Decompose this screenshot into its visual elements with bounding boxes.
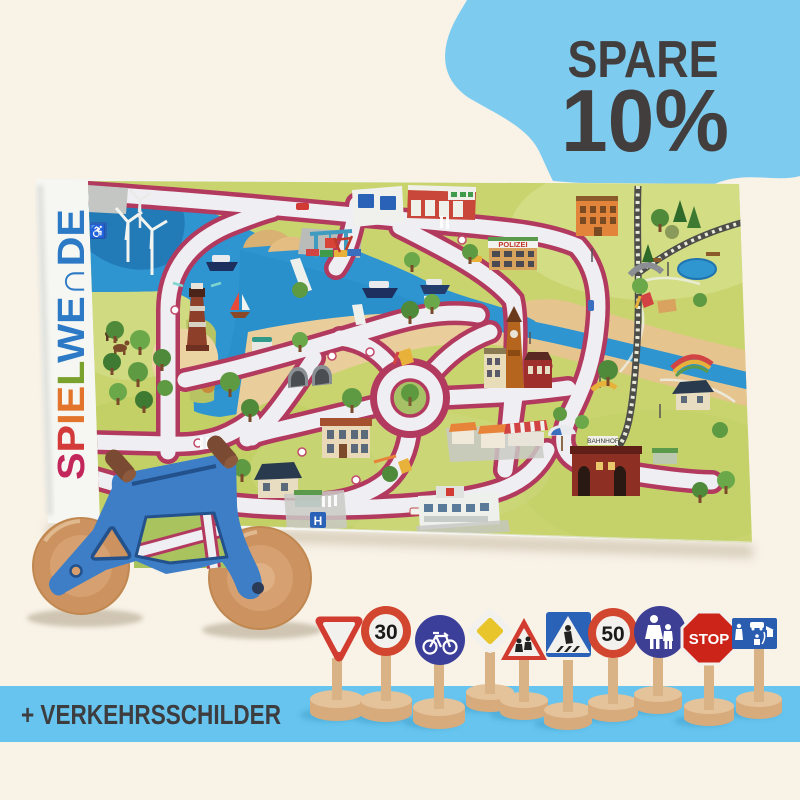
svg-text:STOP: STOP [689,631,730,648]
svg-text:♿: ♿ [90,224,106,239]
svg-text:30: 30 [374,621,397,644]
svg-text:POLIZEI: POLIZEI [498,240,527,249]
svg-text:H: H [314,514,323,528]
svg-text:SPIELWE∩DE: SPIELWE∩DE [51,209,93,480]
svg-text:BAHNHOF: BAHNHOF [587,438,619,445]
svg-text:+ VERKEHRSSCHILDER: + VERKEHRSSCHILDER [21,699,281,730]
svg-text:10%: 10% [561,71,729,170]
svg-text:50: 50 [601,623,624,646]
